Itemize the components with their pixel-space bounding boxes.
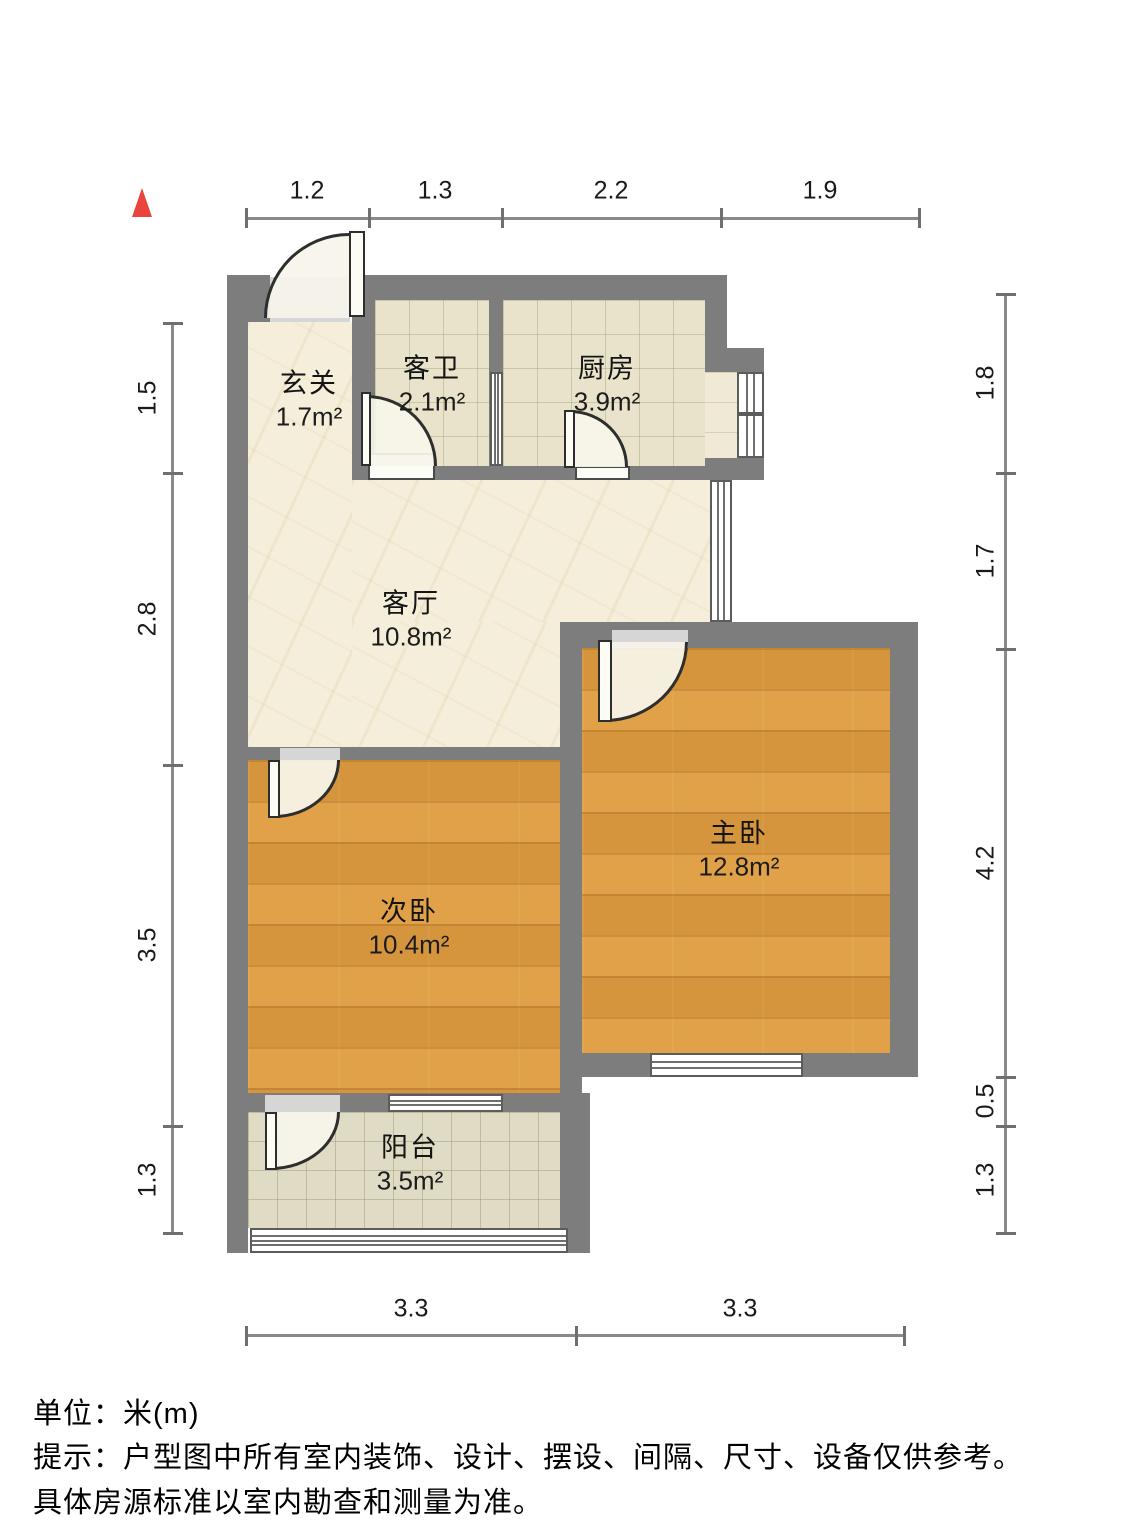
kitchen-bay-window-crossbar xyxy=(737,412,764,416)
dim-tick xyxy=(575,1326,578,1346)
wall-bay-top xyxy=(727,348,764,372)
footer-note-line2: 具体房源标准以室内勘查和测量为准。 xyxy=(33,1479,543,1521)
kitchen-door-sill xyxy=(575,466,630,480)
dim-tick xyxy=(903,1326,906,1346)
dim-tick xyxy=(163,1232,183,1235)
floor-plan: 玄关 1.7m² 客卫 2.1m² 厨房 3.9m² 客厅 10.8m² 主卧 … xyxy=(0,0,1144,1525)
wall-kitchen-right xyxy=(705,300,727,372)
dim-tick xyxy=(501,208,504,228)
dim-label-right: 1.8 xyxy=(972,366,1001,401)
footer-note-line1: 提示：户型图中所有室内装饰、设计、摆设、间隔、尺寸、设备仅供参考。 xyxy=(33,1434,1023,1476)
dim-tick xyxy=(163,764,183,767)
dim-tick xyxy=(163,322,183,325)
dim-label-right: 4.2 xyxy=(972,846,1001,881)
room-label-master-bedroom: 主卧 12.8m² xyxy=(699,818,780,883)
room-name: 玄关 xyxy=(276,368,342,401)
dim-tick xyxy=(996,293,1016,296)
room-area: 1.7m² xyxy=(276,401,342,433)
dim-tick xyxy=(163,472,183,475)
wall-top-outer xyxy=(352,275,727,300)
wall-master-right xyxy=(890,622,918,1077)
dim-tick xyxy=(245,208,248,228)
wall-bay-bottom xyxy=(705,458,764,480)
room-area: 10.8m² xyxy=(371,621,452,653)
balcony-window xyxy=(250,1228,568,1253)
dim-tick xyxy=(996,1076,1016,1079)
footer-unit-line: 单位：米(m) xyxy=(33,1390,199,1432)
room-area: 3.5m² xyxy=(377,1165,443,1197)
dim-label-left: 3.5 xyxy=(134,928,163,963)
dim-label-top: 2.2 xyxy=(594,177,629,206)
room-label-bathroom: 客卫 2.1m² xyxy=(399,353,465,418)
wall-left-outer xyxy=(227,275,248,1253)
dim-tick xyxy=(996,472,1016,475)
dim-label-left: 1.3 xyxy=(134,1163,163,1198)
master-door-leaf xyxy=(598,640,612,722)
room-area: 2.1m² xyxy=(399,386,465,418)
room-name: 客卫 xyxy=(399,353,465,386)
bathroom-door-leaf xyxy=(361,392,371,466)
dim-label-bottom: 3.3 xyxy=(723,1295,758,1324)
dim-label-right: 0.5 xyxy=(972,1084,1001,1119)
room-label-kitchen: 厨房 3.9m² xyxy=(574,353,640,418)
north-arrow-icon xyxy=(132,188,152,217)
room-label-living-room: 客厅 10.8m² xyxy=(371,588,452,653)
room-area: 10.4m² xyxy=(369,929,450,961)
balcony-door-leaf xyxy=(265,1112,277,1170)
room-label-entry: 玄关 1.7m² xyxy=(276,368,342,433)
kitchen-bay-floor xyxy=(705,372,737,458)
room-name: 次卧 xyxy=(369,896,450,929)
dim-tick xyxy=(996,1232,1016,1235)
dim-tick xyxy=(368,208,371,228)
room-label-second-bedroom: 次卧 10.4m² xyxy=(369,896,450,961)
dim-label-top: 1.2 xyxy=(290,177,325,206)
second-bedroom-door-threshold xyxy=(280,748,340,760)
room-name: 阳台 xyxy=(377,1132,443,1165)
room-name: 客厅 xyxy=(371,588,452,621)
dim-tick xyxy=(163,1125,183,1128)
dim-line-left xyxy=(171,323,174,1234)
dim-label-right: 1.7 xyxy=(972,544,1001,579)
room-label-balcony: 阳台 3.5m² xyxy=(377,1132,443,1197)
living-room-east-window xyxy=(710,480,732,622)
dim-tick xyxy=(720,208,723,228)
room-name: 主卧 xyxy=(699,818,780,851)
dim-label-bottom: 3.3 xyxy=(394,1295,429,1324)
dim-label-left: 2.8 xyxy=(134,602,163,637)
dim-line-top xyxy=(246,217,920,220)
dim-label-top: 1.3 xyxy=(418,177,453,206)
entry-door-swing-arc xyxy=(264,233,349,318)
room-name: 厨房 xyxy=(574,353,640,386)
room-area: 12.8m² xyxy=(699,851,780,883)
dim-tick xyxy=(245,1326,248,1346)
dim-tick xyxy=(996,1125,1016,1128)
dim-line-right xyxy=(1004,294,1007,1234)
kitchen-door-leaf xyxy=(564,410,575,468)
dim-tick xyxy=(996,648,1016,651)
dim-label-top: 1.9 xyxy=(803,177,838,206)
room-area: 3.9m² xyxy=(574,386,640,418)
dim-tick xyxy=(918,208,921,228)
bathroom-kitchen-vent-window xyxy=(490,372,503,466)
second-bedroom-balcony-window xyxy=(388,1094,503,1112)
master-bedroom-window xyxy=(650,1053,803,1077)
dim-label-right: 1.3 xyxy=(972,1163,1001,1198)
dim-label-left: 1.5 xyxy=(134,381,163,416)
balcony-door-threshold xyxy=(265,1095,340,1112)
second-bedroom-door-leaf xyxy=(268,760,280,818)
wall-mid-vertical xyxy=(560,622,582,1093)
entry-door-leaf xyxy=(349,231,365,317)
